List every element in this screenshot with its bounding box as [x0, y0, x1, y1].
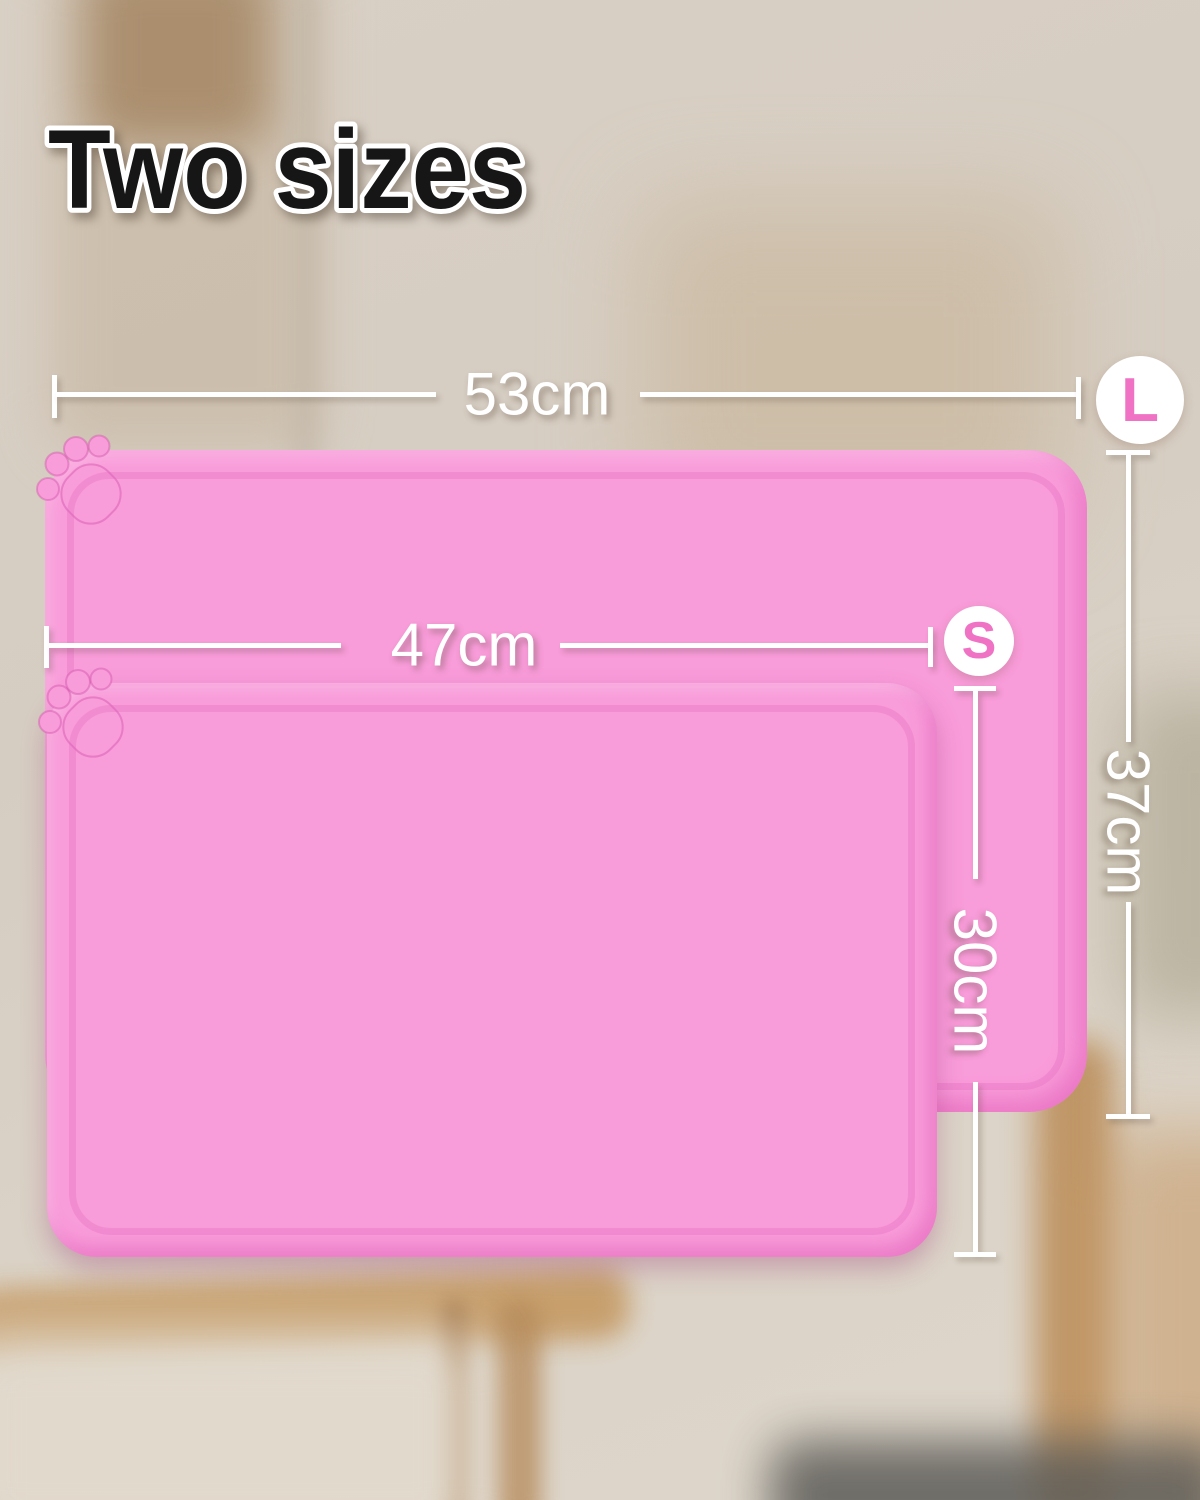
dimension-endcap [954, 1252, 996, 1257]
dimension-line [640, 392, 1077, 397]
dimension-line [1126, 902, 1131, 1114]
dimension-line [973, 691, 978, 879]
dimension-label: 37cm [1094, 749, 1163, 896]
background-dark-object [770, 1440, 1200, 1500]
dimension-line [560, 643, 929, 648]
background-floor [0, 1330, 480, 1500]
dimension-line [973, 1082, 978, 1252]
dimension-label: 53cm [464, 360, 611, 429]
mat-inner-rim [69, 705, 915, 1235]
dimension-endcap [1106, 1114, 1150, 1119]
background-table-leg [495, 1300, 541, 1500]
dimension-label: 30cm [941, 908, 1010, 1055]
svg-text:Two sizes: Two sizes [48, 107, 526, 232]
size-badge-large: L [1096, 356, 1184, 444]
size-badge-letter: S [962, 611, 997, 671]
dimension-line [56, 392, 436, 397]
dimension-label: 47cm [391, 611, 538, 680]
size-badge-letter: L [1121, 365, 1159, 436]
page-title: Two sizes [38, 92, 658, 242]
dimension-tick [928, 627, 933, 667]
dimension-line [49, 643, 341, 648]
product-size-infographic: Two sizes 53cm L 47cm S 37cm 30cm [0, 0, 1200, 1500]
size-badge-small: S [944, 606, 1014, 676]
dimension-tick [1076, 377, 1081, 419]
dimension-line [1126, 455, 1131, 742]
pet-feeding-mat-small [47, 683, 937, 1257]
